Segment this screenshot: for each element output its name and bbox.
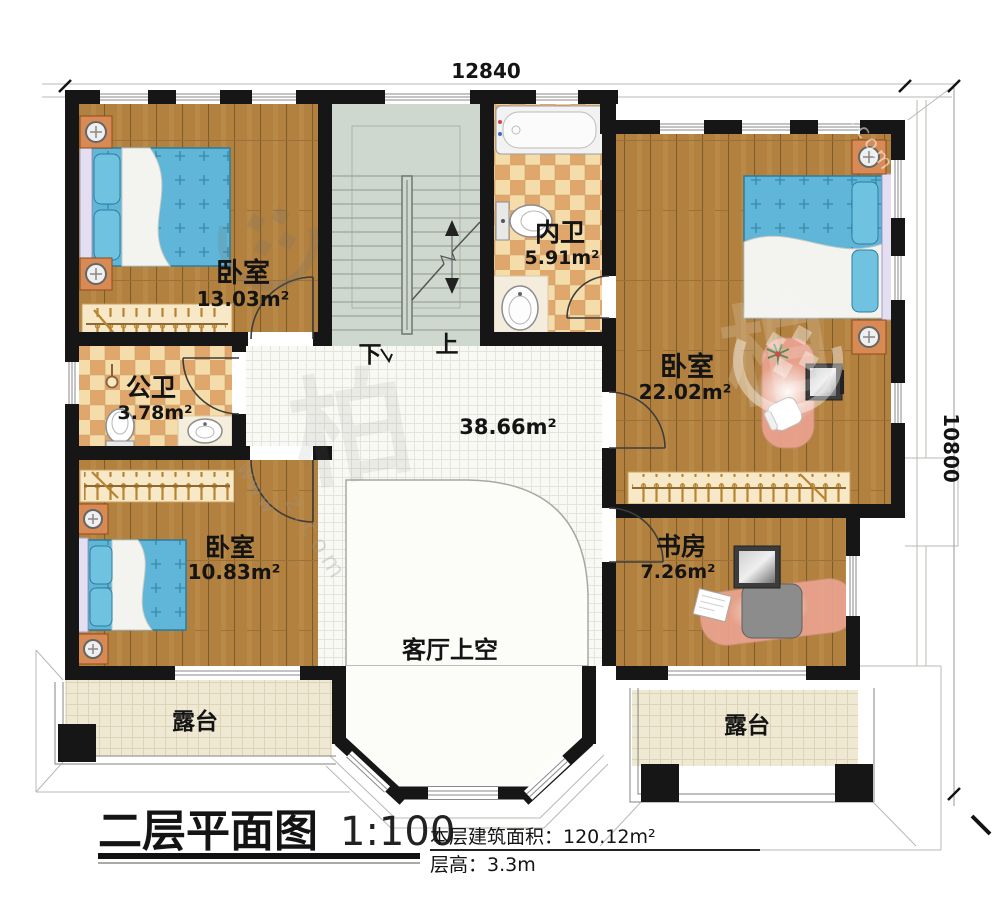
room-area-inner-bath: 5.91m² (525, 247, 600, 269)
watermark-logo-char: 柏 (712, 280, 843, 425)
room-label-study: 书房 (656, 532, 706, 561)
living-void-label: 客厅上空 (402, 636, 498, 664)
dimension-right: 10800 (939, 413, 963, 483)
room-area-study: 7.26m² (641, 561, 716, 583)
bed-bottom-left (78, 538, 186, 632)
bed-top-left (80, 146, 230, 266)
terrace-post (641, 764, 679, 802)
room-label-inner-bath: 内卫 (535, 218, 585, 247)
room-area-bedroom-bottom-left: 10.83m² (188, 560, 281, 584)
bathtub-icon (496, 106, 606, 154)
corner-tick (972, 816, 990, 834)
stairs-up-label: 上 (436, 332, 459, 358)
terrace-left-label: 露台 (172, 708, 218, 735)
room-area-public-bath: 3.78m² (118, 402, 193, 424)
wardrobe-bottom-left (80, 470, 234, 502)
floor-plan-svg: www z.com z.com 柏 柏 卧室 13.03m² 内卫 5.91m²… (0, 0, 1000, 914)
room-area-bedroom-top-left: 13.03m² (197, 287, 290, 311)
floor-plan-page: www z.com z.com 柏 柏 卧室 13.03m² 内卫 5.91m²… (0, 0, 1000, 914)
hall-area-label: 38.66m² (459, 415, 557, 439)
terrace-post (58, 724, 96, 762)
room-area-bedroom-right: 22.02m² (639, 380, 732, 404)
room-label-bedroom-top-left: 卧室 (216, 257, 270, 289)
title-underline (98, 853, 420, 859)
watermark-logo-char: 柏 (281, 351, 423, 509)
dimension-top: 12840 (451, 59, 521, 83)
page-title: 二层平面图 (98, 806, 318, 857)
floor-height-line: 层高：3.3m (430, 854, 536, 876)
room-label-bedroom-right: 卧室 (660, 351, 714, 383)
title-block: 二层平面图 1:100 本层建筑面积：120.12m² 层高：3.3m (98, 806, 760, 876)
room-label-bedroom-bottom-left: 卧室 (205, 533, 255, 562)
terrace-post (835, 764, 873, 802)
floor-area-line: 本层建筑面积：120.12m² (430, 826, 656, 848)
terrace-right-label: 露台 (724, 712, 770, 739)
room-label-public-bath: 公卫 (126, 373, 176, 402)
wardrobe-right (628, 472, 850, 504)
stairs-down-label: 下 (359, 342, 382, 368)
